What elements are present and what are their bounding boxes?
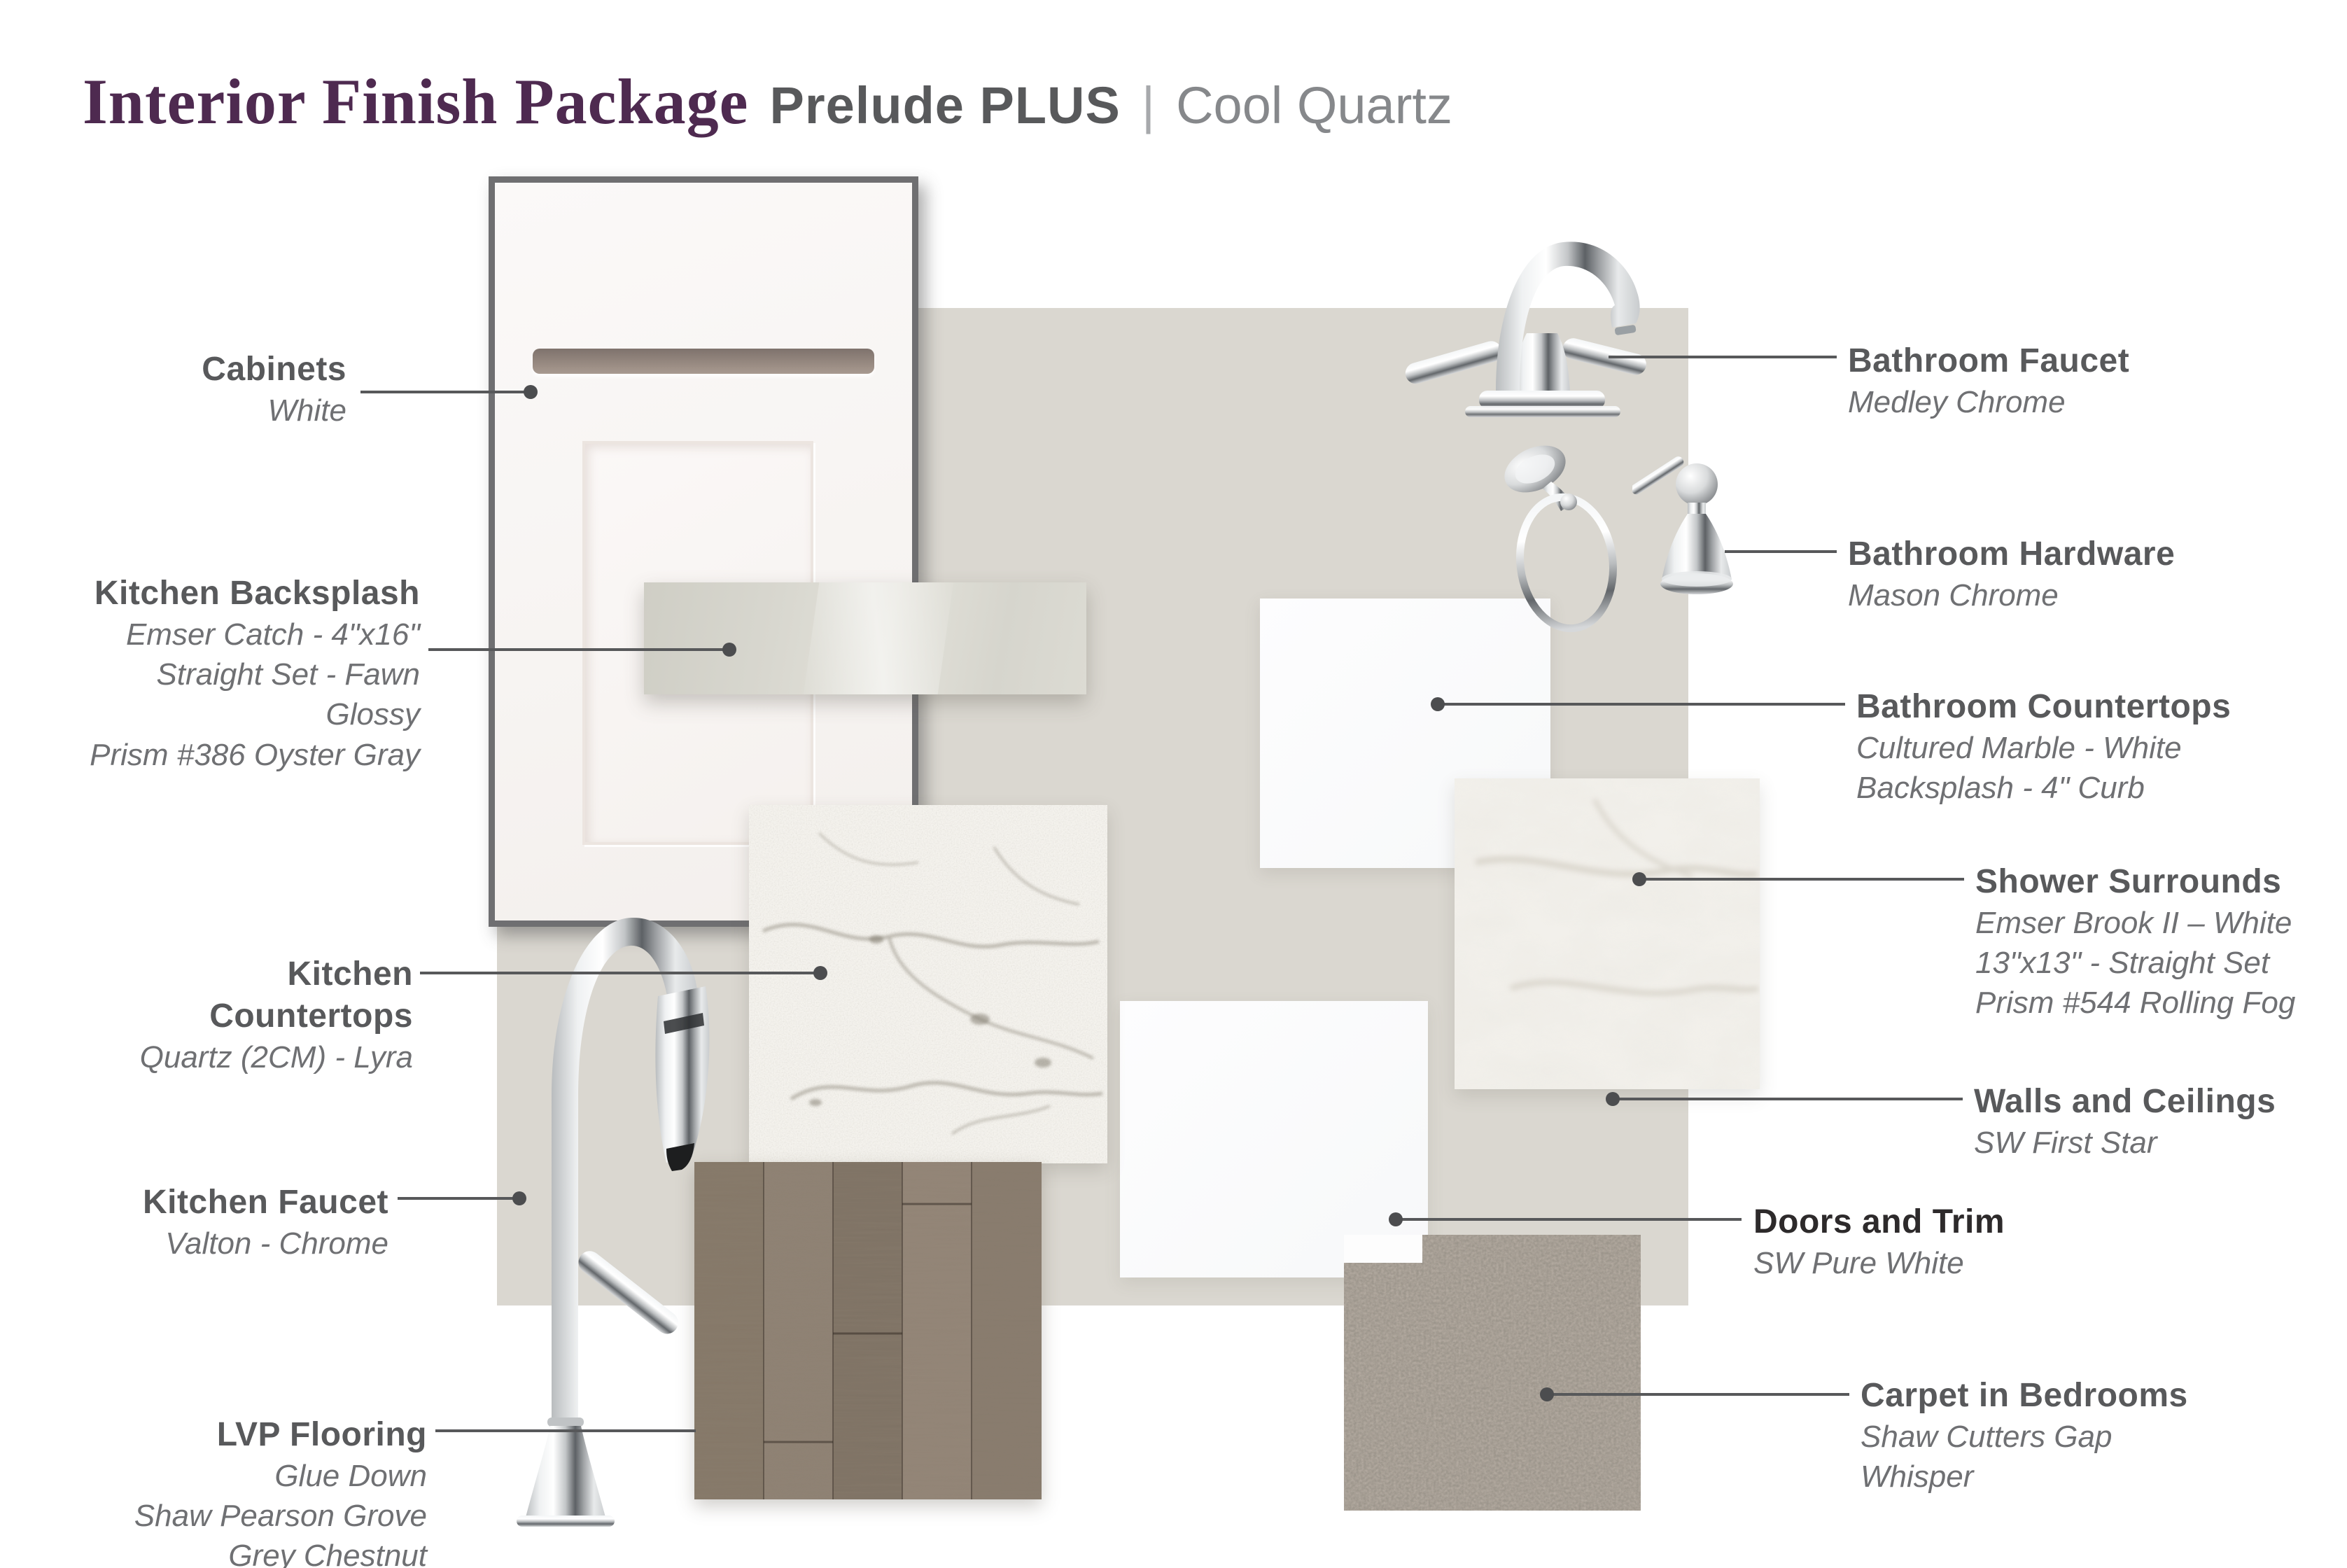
label-bathroom-faucet-title: Bathroom Faucet <box>1848 340 2310 382</box>
label-bathroom-countertops: Bathroom Countertops Cultured Marble - W… <box>1856 686 2339 808</box>
palette-name: Cool Quartz <box>1176 76 1452 135</box>
label-kitchen-backsplash-detail-2: Prism #386 Oyster Gray <box>77 735 420 775</box>
leader-doors-trim <box>1394 1218 1742 1221</box>
label-cabinets-detail-0: White <box>108 391 346 430</box>
label-cabinets-title: Cabinets <box>108 349 346 391</box>
label-lvp-flooring-detail-2: Grey Chestnut <box>98 1536 427 1568</box>
label-bathroom-hardware: Bathroom Hardware Mason Chrome <box>1848 533 2324 615</box>
label-bathroom-hardware-title: Bathroom Hardware <box>1848 533 2324 575</box>
label-shower-surrounds-detail-0: Emser Brook II – White <box>1975 903 2339 943</box>
leader-bathroom-countertops-dot <box>1431 697 1445 711</box>
label-shower-surrounds-title: Shower Surrounds <box>1975 861 2339 903</box>
leader-carpet-bedrooms <box>1546 1393 1849 1396</box>
leader-kitchen-countertops-dot <box>813 966 827 980</box>
leader-shower-surrounds <box>1638 878 1964 881</box>
title-separator: | <box>1142 76 1155 135</box>
label-carpet-bedrooms-detail-0: Shaw Cutters Gap <box>1861 1417 2323 1457</box>
label-doors-trim-detail-0: SW Pure White <box>1753 1243 2173 1283</box>
leader-lvp-flooring <box>435 1429 696 1432</box>
label-bathroom-faucet-detail-0: Medley Chrome <box>1848 382 2310 422</box>
leader-kitchen-faucet-dot <box>512 1191 526 1205</box>
kitchen-backsplash-sample <box>644 582 1086 694</box>
leader-carpet-bedrooms-dot <box>1540 1387 1554 1401</box>
label-carpet-bedrooms-detail-1: Whisper <box>1861 1457 2323 1497</box>
label-lvp-flooring-detail-1: Shaw Pearson Grove <box>98 1496 427 1536</box>
label-kitchen-backsplash-detail-0: Emser Catch - 4"x16" <box>77 615 420 654</box>
leader-bathroom-faucet <box>1609 356 1837 358</box>
label-shower-surrounds: Shower Surrounds Emser Brook II – White … <box>1975 861 2339 1023</box>
carpet-sample <box>1344 1235 1641 1511</box>
page-header: Interior Finish Package Prelude PLUS | C… <box>83 64 1452 139</box>
leader-shower-surrounds-dot <box>1632 872 1646 886</box>
label-kitchen-faucet-title: Kitchen Faucet <box>108 1182 388 1224</box>
label-shower-surrounds-detail-1: 13"x13" - Straight Set <box>1975 943 2339 983</box>
label-kitchen-faucet-detail-0: Valton - Chrome <box>108 1224 388 1263</box>
label-walls-ceilings-title: Walls and Ceilings <box>1974 1081 2338 1123</box>
label-walls-ceilings: Walls and Ceilings SW First Star <box>1974 1081 2338 1163</box>
label-kitchen-backsplash-title: Kitchen Backsplash <box>77 573 420 615</box>
kitchen-countertop-sample <box>749 805 1107 1163</box>
label-doors-trim-title: Doors and Trim <box>1753 1201 2173 1243</box>
bathroom-faucet-image <box>1389 203 1669 427</box>
finish-package-board: Interior Finish Package Prelude PLUS | C… <box>0 0 2347 1568</box>
package-name: Prelude PLUS <box>770 76 1121 135</box>
label-lvp-flooring-title: LVP Flooring <box>98 1414 427 1456</box>
label-kitchen-faucet: Kitchen Faucet Valton - Chrome <box>108 1182 388 1263</box>
label-bathroom-countertops-title: Bathroom Countertops <box>1856 686 2339 728</box>
leader-kitchen-faucet <box>398 1197 519 1200</box>
label-cabinets: Cabinets White <box>108 349 346 430</box>
lvp-flooring-sample <box>694 1162 1042 1499</box>
label-kitchen-countertops: Kitchen Countertops Quartz (2CM) - Lyra <box>84 953 413 1077</box>
leader-kitchen-countertops <box>420 972 820 974</box>
leader-walls-ceilings-dot <box>1606 1092 1620 1106</box>
label-carpet-bedrooms-title: Carpet in Bedrooms <box>1861 1375 2323 1417</box>
towel-ring-image <box>1497 435 1626 638</box>
leader-kitchen-backsplash-dot <box>722 643 736 657</box>
label-kitchen-backsplash: Kitchen Backsplash Emser Catch - 4"x16" … <box>77 573 420 775</box>
label-kitchen-backsplash-detail-1: Straight Set - Fawn Glossy <box>77 654 420 734</box>
leader-kitchen-backsplash <box>428 648 729 651</box>
label-lvp-flooring: LVP Flooring Glue Down Shaw Pearson Grov… <box>98 1414 427 1568</box>
label-bathroom-countertops-detail-1: Backsplash - 4" Curb <box>1856 768 2339 808</box>
robe-hook-image <box>1632 441 1748 605</box>
cabinet-drawer-slot <box>533 349 875 374</box>
label-bathroom-countertops-detail-0: Cultured Marble - White <box>1856 728 2339 768</box>
leader-walls-ceilings <box>1611 1098 1963 1100</box>
leader-doors-trim-dot <box>1389 1212 1403 1226</box>
label-bathroom-faucet: Bathroom Faucet Medley Chrome <box>1848 340 2310 422</box>
leader-bathroom-hardware <box>1725 550 1837 553</box>
page-title: Interior Finish Package <box>83 64 749 139</box>
leader-cabinets <box>360 391 531 393</box>
carpet-sample-notch <box>1344 1235 1422 1263</box>
label-shower-surrounds-detail-2: Prism #544 Rolling Fog <box>1975 983 2339 1023</box>
label-carpet-bedrooms: Carpet in Bedrooms Shaw Cutters Gap Whis… <box>1861 1375 2323 1497</box>
label-lvp-flooring-detail-0: Glue Down <box>98 1456 427 1496</box>
label-kitchen-countertops-title: Kitchen Countertops <box>84 953 413 1037</box>
label-walls-ceilings-detail-0: SW First Star <box>1974 1123 2338 1163</box>
label-doors-trim: Doors and Trim SW Pure White <box>1753 1201 2173 1283</box>
leader-bathroom-countertops <box>1436 703 1845 706</box>
label-bathroom-hardware-detail-0: Mason Chrome <box>1848 575 2324 615</box>
leader-cabinets-dot <box>524 385 538 399</box>
shower-surround-sample <box>1455 778 1760 1089</box>
label-kitchen-countertops-detail-0: Quartz (2CM) - Lyra <box>84 1037 413 1077</box>
